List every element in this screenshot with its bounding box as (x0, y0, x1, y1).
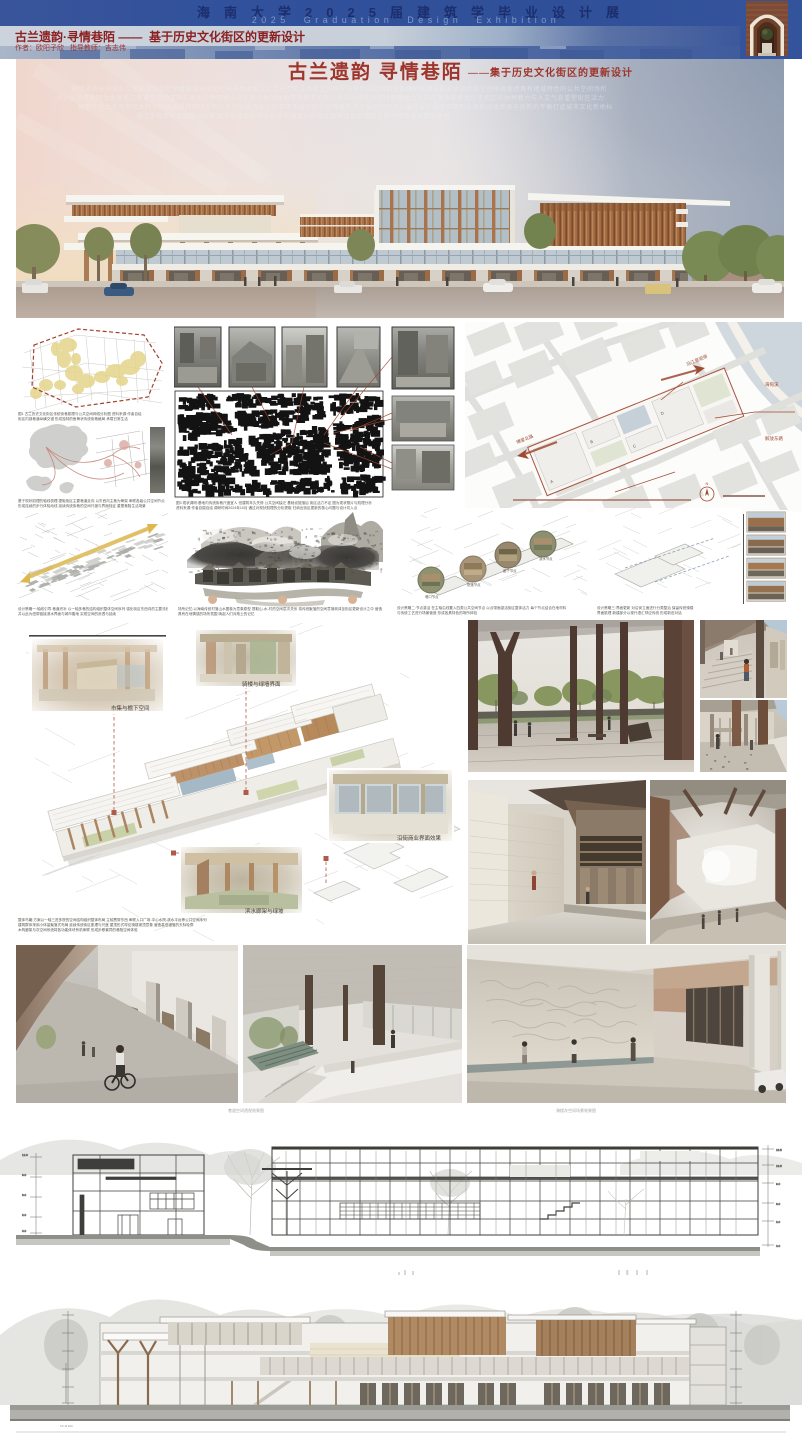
svg-text:廊下节点: 廊下节点 (503, 568, 517, 573)
svg-text:骑楼与绿墙界面: 骑楼与绿墙界面 (242, 680, 281, 688)
svg-text:6.0: 6.0 (22, 1193, 27, 1197)
svg-text:院落节点: 院落节点 (467, 582, 481, 587)
svg-text:与传统工艺进行场景营造 形成各具特色的场所体验: 与传统工艺进行场景营造 形成各具特色的场所体验 (397, 610, 477, 615)
svg-text:滨水节点: 滨水节点 (539, 556, 553, 561)
svg-text:建筑形态上采用现代木构与传统坡屋顶相结合的方式材料选用本土的: 建筑形态上采用现代木构与传统坡屋顶相结合的方式材料选用本土的青砖木材与石材在尊重… (78, 103, 613, 111)
svg-text:市集与檐下空间: 市集与檐下空间 (111, 704, 150, 712)
svg-text:6.0: 6.0 (776, 1202, 781, 1206)
svg-text:——集于历史文化街区的更新设计: ——集于历史文化街区的更新设计 (467, 66, 633, 79)
svg-text:界面肌理 新建部分以现代语汇呼应传统 形成新旧对话: 界面肌理 新建部分以现代语汇呼应传统 形成新旧对话 (597, 610, 682, 615)
svg-text:海甸溪: 海甸溪 (765, 381, 779, 388)
svg-text:0 5 10 20m: 0 5 10 20m (60, 1424, 73, 1428)
svg-text:巷口节点: 巷口节点 (425, 594, 439, 599)
svg-text:9.0: 9.0 (776, 1182, 781, 1186)
svg-text:基于现状肌理的轴线梳理:提取街区主要巷道走向 以东西向主巷为: 基于现状肌理的轴线梳理:提取街区主要巷道走向 以东西向主巷为骨架 串联各级公共空… (18, 498, 165, 503)
svg-text:整体鸟瞰:方案以一轴三进多院的空间结构组织整体布局 主轴贯穿: 整体鸟瞰:方案以一轴三进多院的空间结构组织整体布局 主轴贯穿东西 串联入口广场-… (18, 917, 207, 922)
svg-text:N: N (706, 481, 709, 486)
svg-text:图1 古兰历史文化街区传统街巷肌理与公共空间网络分析图 资料: 图1 古兰历史文化街区传统街巷肌理与公共空间网络分析图 资料来源:作者自绘 (18, 411, 142, 416)
svg-text:滨水廊架与绿坡: 滨水廊架与绿坡 (245, 907, 284, 915)
svg-text:沿街商业界面效果: 沿街商业界面效果 (397, 834, 442, 842)
svg-text:古兰遗韵 寻情巷陌: 古兰遗韵 寻情巷陌 (288, 60, 463, 83)
svg-text:形成连续的步行体验动线 延续传统街巷的空间尺度与界面特征 重: 形成连续的步行体验动线 延续传统街巷的空间尺度与界面特征 重塑巷陌生活场景 (18, 503, 146, 508)
svg-text:设计策略二:节点激活 在主轴沿线置入四类公共空间节点 以点带: 设计策略二:节点激活 在主轴沿线置入四类公共空间节点 以点带面激活街区整体活力 … (397, 605, 567, 610)
svg-text:解放东路: 解放东路 (765, 435, 783, 442)
svg-text:并以此为纽带链接滨水界面与城市腹地 实现空间的渗透与延续: 并以此为纽带链接滨水界面与城市腹地 实现空间的渗透与延续 (18, 611, 116, 616)
svg-text:图3 现状调研:基地内传统街巷尺度宜人 但建筑年久失修 公共: 图3 现状调研:基地内传统街巷尺度宜人 但建筑年久失修 公共空间缺乏 基础设施落… (176, 500, 372, 505)
svg-text:设计以寻情巷陌为主题通过巷道空间的重构与再生将传统商业文化展: 设计以寻情巷陌为主题通过巷道空间的重构与再生将传统商业文化展示休闲体验等功能有机… (56, 94, 604, 102)
svg-text:3.0: 3.0 (776, 1220, 781, 1224)
svg-text:设计策略三:界面更新 对沿街立面进行分类整治 保留传统骑楼: 设计策略三:界面更新 对沿街立面进行分类整治 保留传统骑楼 (597, 605, 694, 610)
svg-text:在历史的长河中古兰历史文化街区承载着城市的记忆与乡愁本设计立: 在历史的长河中古兰历史文化街区承载着城市的记忆与乡愁本设计立足于历史文化街区的保… (72, 85, 607, 93)
svg-text:建筑群体采用小体量聚落式布局 延续传统街区肌理与尺度 屋顶形: 建筑群体采用小体量聚落式布局 延续传统街区肌理与尺度 屋顶形式呼应骑楼坡顶意象 … (18, 922, 194, 927)
svg-text:12.0: 12.0 (22, 1153, 28, 1157)
svg-text:16.5: 16.5 (776, 1148, 782, 1152)
svg-text:3.0: 3.0 (22, 1213, 27, 1217)
svg-text:13.5: 13.5 (776, 1164, 782, 1168)
svg-text:通过多层次的空间组织与景观渗透营造出开放包容充满活力的街区场: 通过多层次的空间组织与景观渗透营造出开放包容充满活力的街区场所让古兰遗韵在新时代… (136, 112, 451, 120)
svg-text:0.0: 0.0 (776, 1244, 781, 1248)
svg-text:设计策略一:轴线引导 巷道织补 以一轴多巷的结构组织整体空间: 设计策略一:轴线引导 巷道织补 以一轴多巷的结构组织整体空间序列 强化街区东西向… (18, 606, 168, 611)
svg-text:9.0: 9.0 (22, 1173, 27, 1177)
svg-text:0.0: 0.0 (22, 1229, 27, 1233)
svg-text:木构廊架与灰空间系统将各功能体块有机串联 形成步移景异的巷陌: 木构廊架与灰空间系统将各功能体块有机串联 形成步移景异的巷陌空间体验 (18, 927, 138, 932)
svg-text:街区内部巷道纵横交错 形成独特的鱼骨状传统街巷格局 承载日常: 街区内部巷道纵横交错 形成独特的鱼骨状传统街巷格局 承载日常生活 (18, 416, 128, 421)
